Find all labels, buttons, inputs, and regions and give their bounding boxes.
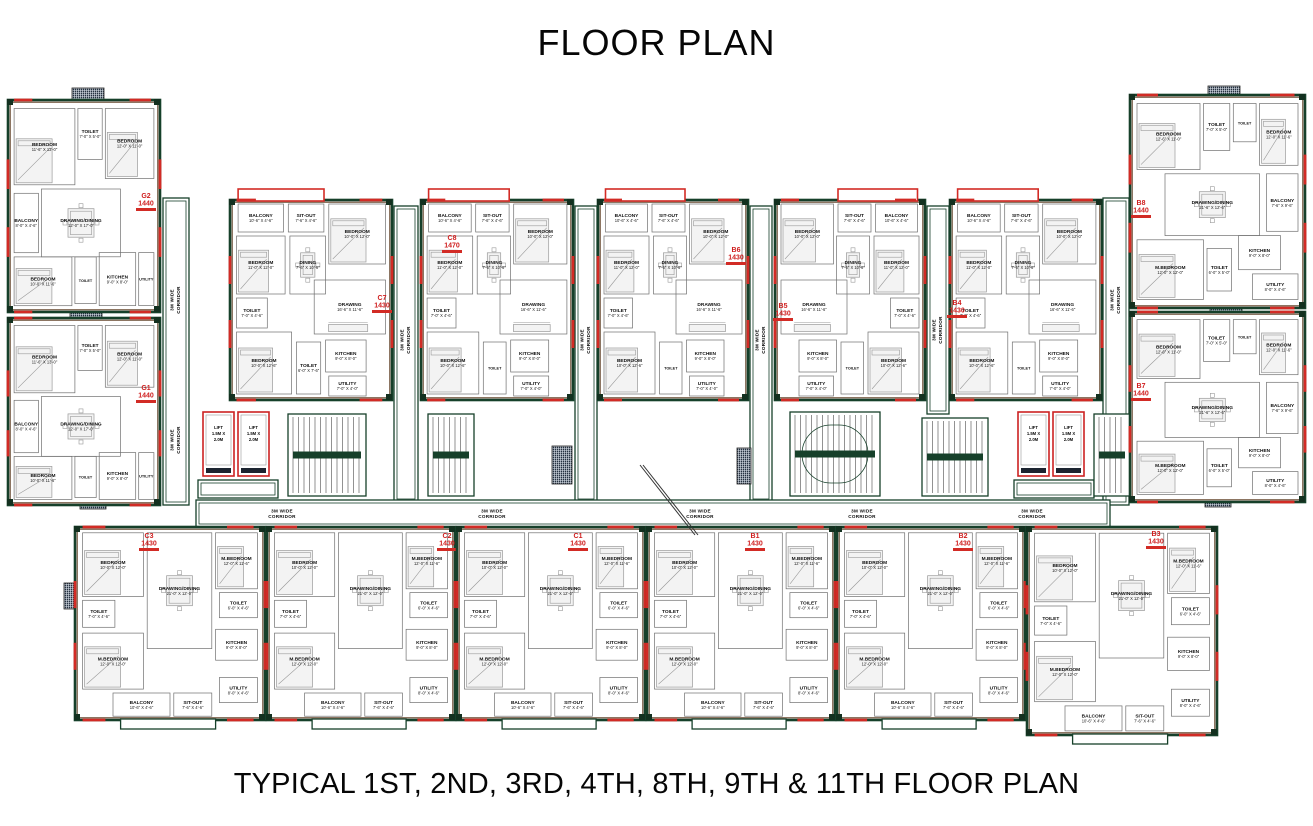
wall-corner-block <box>1026 526 1032 532</box>
corridor-label: 3M WIDE <box>1021 509 1043 514</box>
room-dims: 7'-6" X 10'-6" <box>482 265 506 270</box>
room-dims: 10'-0" X 12'-0" <box>862 565 888 570</box>
room-dims: 11'-0" X 12'-0" <box>614 265 640 270</box>
room-dims: 12'-0" X 12'-0" <box>1052 672 1078 677</box>
wall-corner-block <box>74 526 80 532</box>
room-dims: 9'-0" X 8'-0" <box>606 645 628 650</box>
room-dims: 6'-0" X 4'-6" <box>988 605 1010 610</box>
lift-door <box>241 468 266 473</box>
wall-corner-block <box>1299 302 1305 308</box>
unit-tag-threshold <box>136 208 156 211</box>
corridor-label: CORRIDOR <box>938 316 943 344</box>
unit-B2: BEDROOM10'-0" X 12'-0"DRAWING/DINING21'-… <box>266 526 457 729</box>
room-dims: 7'-6" X 4'-6" <box>182 705 204 710</box>
unit-tag-code: C1 <box>574 533 583 540</box>
wall-corner-block <box>449 714 455 720</box>
unit-RW-B: BEDROOM12'-6" X 11'-0"TOILET7'-0" X 5'-0… <box>1129 311 1305 502</box>
room-dims: 10'-6" X 4'-6" <box>701 705 725 710</box>
room-dims: 16'-6" X 11'-6" <box>521 307 547 312</box>
room-dims: 7'-0" X 4'-6" <box>280 614 302 619</box>
corridor <box>163 198 189 505</box>
room-dims: 7'-0" X 5'-0" <box>1206 127 1228 132</box>
room-dims: 9'-0" X 8'-0" <box>1178 654 1200 659</box>
lift <box>1018 412 1049 476</box>
unit-RW-A: BEDROOM12'-6" X 11'-0"TOILET7'-0" X 5'-0… <box>1129 94 1305 308</box>
room-dims: 7'-6" X 9'-6" <box>1272 203 1294 208</box>
corridor-label: CORRIDOR <box>686 514 714 519</box>
wall-corner-block <box>7 306 13 312</box>
room-dims: 9'-0" X 8'-0" <box>1249 253 1271 258</box>
lift-door <box>1021 468 1046 473</box>
unit-tag-threshold <box>136 400 156 403</box>
unit-LW-B: BEDROOM11'-6" X 13'-0"TOILET7'-0" X 5'-0… <box>7 317 160 505</box>
room-dims: 12'-0" X 11'-6" <box>984 561 1010 566</box>
wall-corner-block <box>919 199 925 205</box>
lift <box>238 412 269 476</box>
room-dims: 7'-0" X 4'-0" <box>521 386 543 391</box>
unit-tag-code: C7 <box>378 295 387 302</box>
wall-corner-block <box>597 199 603 205</box>
wall-corner-block <box>639 714 645 720</box>
balcony-projection <box>312 719 406 729</box>
wall-corner-block <box>639 526 645 532</box>
room-dims: 21'-0" X 12'-0" <box>357 591 383 596</box>
room-dims: 10'-0" X 12'-0" <box>292 565 318 570</box>
room-dims: 10'-6" X 4'-6" <box>1082 719 1106 724</box>
wall-corner-block <box>836 714 842 720</box>
room-dims: 9'-0" X 8'-0" <box>416 645 438 650</box>
room-dims: 6'-0" X 4'-6" <box>1180 611 1202 616</box>
room-dims: 21'-0" X 12'-0" <box>737 591 763 596</box>
corridor-label: 3M WIDE <box>1109 289 1114 311</box>
room-name: TOILET <box>664 367 678 371</box>
unit-tag-area: 1440 <box>138 201 154 208</box>
balcony-projection <box>121 719 216 729</box>
room-dims: 11'-6" X 13'-0" <box>32 147 58 152</box>
room-dims: 12'-6" X 11'-0" <box>1156 137 1182 142</box>
stair-landing-rail <box>293 452 361 459</box>
stair-landing-rail <box>433 452 469 459</box>
unit-tag-threshold <box>1131 215 1151 218</box>
room-dims: 12'-0" X 11'-6" <box>604 561 630 566</box>
unit-tag-threshold <box>1146 546 1166 549</box>
room-dims: 21'-0" X 12'-0" <box>547 591 573 596</box>
room-dims: 11'-0" X 12'-0" <box>437 265 463 270</box>
balcony-projection <box>502 719 596 729</box>
wall-corner-block <box>229 394 235 400</box>
unit-tag-code: B6 <box>732 247 741 254</box>
lift-label: LIFT <box>249 425 258 430</box>
room-dims: 12'-0" X 12'-0" <box>672 661 698 666</box>
corridor-label: 3M WIDE <box>851 509 873 514</box>
bed <box>606 250 634 292</box>
unit-tag-threshold <box>726 262 746 265</box>
unit-tag-area: 1430 <box>374 303 390 310</box>
corridor-label: CORRIDOR <box>268 514 296 519</box>
balcony-projection <box>882 719 976 729</box>
room-dims: 10'-0" X 12'-0" <box>703 234 729 239</box>
lift-label: 2.0M <box>214 437 224 442</box>
room-dims: 9'-0" X 8'-0" <box>1048 356 1070 361</box>
room-dims: 10'-0" X 11'-6" <box>30 478 56 483</box>
corridor <box>196 500 1110 527</box>
room-dims: 10'-0" X 12'-0" <box>794 234 820 239</box>
room-dims: 7'-6" X 4'-6" <box>1011 218 1033 223</box>
corridor-label: 3M WIDE <box>169 429 174 451</box>
room-dims: 6'-0" X 4'-6" <box>798 605 820 610</box>
corridor-label: CORRIDOR <box>478 514 506 519</box>
wall-corner-block <box>567 394 573 400</box>
wall-corner-block <box>1129 496 1135 502</box>
bed <box>429 250 457 292</box>
lift-door <box>206 468 231 473</box>
wall-corner-block <box>1019 714 1025 720</box>
room-dims: 10'-0" X 12'-6" <box>251 363 277 368</box>
wall-corner-block <box>266 526 272 532</box>
room-dims: 8'-0" X 4'-6" <box>418 690 440 695</box>
room-dims: 7'-0" X 4'-0" <box>337 386 359 391</box>
room-dims: 7'-0" X 4'-6" <box>608 313 630 318</box>
room-dims: 10'-0" X 12'-0" <box>527 234 553 239</box>
corridor-label: 3M WIDE <box>579 329 584 351</box>
room-dims: 21'-0" X 12'-0" <box>167 591 193 596</box>
room-dims: 10'-0" X 12'-0" <box>100 565 126 570</box>
room-dims: 7'-0" X 5'-0" <box>79 134 101 139</box>
room-dims: 12'-0" X 12'-0" <box>1157 270 1183 275</box>
unit-tag-threshold <box>372 310 392 313</box>
wall-corner-block <box>567 199 573 205</box>
room-dims: 10'-0" X 12'-0" <box>672 565 698 570</box>
room-dims: 16'-6" X 11'-6" <box>1050 307 1076 312</box>
room-dims: 12'-6" X 11'-0" <box>1156 349 1182 354</box>
bed <box>1170 548 1196 591</box>
room-dims: 10'-0" X 12'-0" <box>344 234 370 239</box>
room-name: TOILET <box>79 476 93 480</box>
room-dims: 8'-0" X 4'-6" <box>1265 287 1287 292</box>
sofa <box>689 325 725 332</box>
room-dims: 10'-0" X 12'-6" <box>440 363 466 368</box>
unit-tag-area: 1430 <box>775 311 791 318</box>
wall-corner-block <box>1299 496 1305 502</box>
unit-tag-area: 1430 <box>949 308 965 315</box>
room-dims: 21'-6" X 12'-6" <box>1199 410 1225 415</box>
room-dims: 9'-0" X 8'-0" <box>1249 453 1271 458</box>
corridor-label: 3M WIDE <box>931 319 936 341</box>
unit-T3: BALCONY10'-6" X 4'-6"SIT-OUT7'-6" X 4'-6… <box>597 189 748 400</box>
page-caption: TYPICAL 1ST, 2ND, 3RD, 4TH, 8TH, 9TH & 1… <box>0 768 1313 801</box>
room-dims: 7'-6" X 9'-6" <box>1272 408 1294 413</box>
room-dims: 10'-0" X 12'-6" <box>617 363 643 368</box>
wall-corner-block <box>386 394 392 400</box>
unit-B5: BEDROOM10'-0" X 12'-0"DRAWING/DINING21'-… <box>836 526 1025 729</box>
room-dims: 16'-6" X 11'-6" <box>696 307 722 312</box>
room-dims: 7'-0" X 4'-6" <box>470 614 492 619</box>
room-dims: 8'-0" X 4'-6" <box>608 690 630 695</box>
corridor-label: CORRIDOR <box>176 286 181 314</box>
unit-B3: BEDROOM10'-0" X 12'-0"DRAWING/DINING21'-… <box>456 526 645 729</box>
unit-T2: BALCONY10'-6" X 4'-6"SIT-OUT7'-6" X 4'-6… <box>420 189 573 400</box>
stair-landing-rail <box>927 454 983 461</box>
room-dims: 9'-0" X 8'-0" <box>807 356 829 361</box>
room-dims: 7'-0" X 4'-0" <box>696 386 718 391</box>
bed <box>978 547 1004 587</box>
room-dims: 21'-0" X 12'-0" <box>1119 596 1145 601</box>
room-dims: 12'-0" X 11'-6" <box>1176 564 1202 569</box>
wall-corner-block <box>774 394 780 400</box>
room-dims: 10'-6" X 4'-6" <box>511 705 535 710</box>
room-dims: 8'-0" X 4'-6" <box>1265 483 1287 488</box>
room-dims: 7'-6" X 10'-6" <box>841 265 865 270</box>
sofa <box>794 325 830 332</box>
lift-label: 2.0M <box>1064 437 1074 442</box>
room-dims: 12'-0" X 11'-6" <box>1266 347 1292 352</box>
corridor-label: 3M WIDE <box>169 289 174 311</box>
stair-landing-rail <box>795 451 875 458</box>
wall-corner-block <box>949 199 955 205</box>
room-dims: 12'-0" X 12'-0" <box>862 661 888 666</box>
unit-tag-code: C2 <box>443 533 452 540</box>
unit-tag-threshold <box>442 250 462 253</box>
room-dims: 9'-0" X 8'-0" <box>695 356 717 361</box>
room-dims: 6'-0" X 7'-6" <box>298 368 320 373</box>
duct-shaft <box>552 446 572 484</box>
room-name: TOILET <box>1238 121 1252 125</box>
room-dims: 8'-0" X 4'-6" <box>988 690 1010 695</box>
unit-tag-code: B7 <box>1137 383 1146 390</box>
room-dims: 10'-6" X 4'-6" <box>967 218 991 223</box>
corridor-label: CORRIDOR <box>1018 514 1046 519</box>
wall-corner-block <box>154 499 160 505</box>
lift <box>203 412 234 476</box>
room-dims: 7'-6" X 10'-6" <box>1011 265 1035 270</box>
room-dims: 10'-0" X 12'-0" <box>482 565 508 570</box>
lift-label: LIFT <box>214 425 223 430</box>
room-dims: 7'-0" X 4'-6" <box>850 614 872 619</box>
corridor-label: CORRIDOR <box>586 326 591 354</box>
unit-tag-code: B2 <box>959 533 968 540</box>
wall-corner-block <box>259 526 265 532</box>
unit-tag-code: B8 <box>1137 200 1146 207</box>
unit-tag-area: 1470 <box>444 243 460 250</box>
room-dims: 8'-0" X 4'-6" <box>16 427 38 432</box>
unit-tag-threshold <box>437 548 457 551</box>
wall-corner-block <box>456 714 462 720</box>
room-dims: 9'-0" X 8'-0" <box>796 645 818 650</box>
unit-tag-area: 1430 <box>1148 539 1164 546</box>
room-name: TOILET <box>1017 367 1031 371</box>
wall-corner-block <box>1129 302 1135 308</box>
room-dims: 6'-0" X 4'-6" <box>608 605 630 610</box>
unit-B4: BEDROOM10'-0" X 12'-0"DRAWING/DINING21'-… <box>646 526 835 729</box>
floor-plan-sheet: FLOOR PLAN 3M WIDECORRIDOR3M WIDECORRIDO… <box>0 0 1313 826</box>
room-dims: 8'-0" X 4'-6" <box>798 690 820 695</box>
wall-corner-block <box>154 99 160 105</box>
wall-corner-block <box>1211 729 1217 735</box>
room-dims: 7'-0" X 4'-6" <box>431 313 453 318</box>
room-name: UTILITY <box>139 278 154 282</box>
unit-tag-threshold <box>139 548 159 551</box>
lift <box>1053 412 1084 476</box>
wall-corner-block <box>456 526 462 532</box>
wall-corner-block <box>1019 526 1025 532</box>
bed <box>598 547 624 587</box>
unit-tag-area: 1430 <box>747 541 763 548</box>
unit-T1: BALCONY10'-6" X 4'-6"SIT-OUT7'-6" X 4'-6… <box>229 189 392 400</box>
lift-label: 1.5M X <box>212 431 225 436</box>
room-dims: 9'-0" X 8'-0" <box>986 645 1008 650</box>
wall-corner-block <box>742 394 748 400</box>
unit-B1: BEDROOM10'-0" X 12'-0"DRAWING/DINING21'-… <box>74 526 265 729</box>
room-dims: 9'-0" X 8'-0" <box>107 279 129 284</box>
bed <box>958 250 986 292</box>
room-name: TOILET <box>79 279 93 283</box>
room-dims: 12'-0" X 11'-6" <box>1266 135 1292 140</box>
unit-tag-threshold <box>773 318 793 321</box>
wall-corner-block <box>154 306 160 312</box>
room-dims: 12'-0" X 17'-0" <box>68 427 94 432</box>
room-dims: 10'-0" X 12'-6" <box>969 363 995 368</box>
room-dims: 7'-0" X 5'-0" <box>1206 341 1228 346</box>
bed <box>788 547 814 587</box>
wall-corner-block <box>1129 311 1135 317</box>
corridor-label: 3M WIDE <box>399 329 404 351</box>
room-name: UTILITY <box>139 475 154 479</box>
lift-label: 2.0M <box>1029 437 1039 442</box>
room-dims: 8'-0" X 4'-6" <box>1180 703 1202 708</box>
room-dims: 10'-0" X 12'-0" <box>1056 234 1082 239</box>
unit-tag-threshold <box>947 315 967 318</box>
room-dims: 7'-0" X 5'-0" <box>79 348 101 353</box>
lift-label: 1.5M X <box>247 431 260 436</box>
room-dims: 12'-0" X 17'-0" <box>68 223 94 228</box>
unit-tag-area: 1440 <box>138 393 154 400</box>
room-name: TOILET <box>846 367 860 371</box>
room-dims: 12'-0" X 11'-6" <box>794 561 820 566</box>
room-dims: 9'-0" X 8'-0" <box>107 476 129 481</box>
room-dims: 8'-0" X 4'-6" <box>228 690 250 695</box>
room-dims: 10'-6" X 4'-6" <box>438 218 462 223</box>
wall-corner-block <box>774 199 780 205</box>
unit-tag-area: 1430 <box>955 541 971 548</box>
room-dims: 8'-0" X 4'-6" <box>16 223 38 228</box>
room-dims: 7'-6" X 4'-6" <box>753 705 775 710</box>
wall-corner-block <box>154 317 160 323</box>
lift-label: 1.5M X <box>1062 431 1075 436</box>
wall-corner-block <box>646 526 652 532</box>
room-dims: 7'-6" X 4'-6" <box>482 218 504 223</box>
room-dims: 7'-6" X 4'-6" <box>295 218 317 223</box>
lift-label: LIFT <box>1029 425 1038 430</box>
room-dims: 7'-6" X 10'-6" <box>658 265 682 270</box>
bed <box>218 547 244 587</box>
room-dims: 12'-0" X 12'-0" <box>1157 468 1183 473</box>
room-dims: 10'-6" X 4'-6" <box>615 218 639 223</box>
room-dims: 21'-6" X 12'-6" <box>1199 205 1225 210</box>
lift-label: LIFT <box>1064 425 1073 430</box>
unit-tag-code: B4 <box>953 300 962 307</box>
room-dims: 11'-0" X 12'-0" <box>966 265 992 270</box>
wall-corner-block <box>919 394 925 400</box>
room-dims: 7'-0" X 4'-6" <box>1040 621 1062 626</box>
room-dims: 12'-0" X 11'-6" <box>414 561 440 566</box>
corridor-label: 3M WIDE <box>689 509 711 514</box>
room-dims: 10'-6" X 4'-6" <box>321 705 345 710</box>
balcony-projection <box>692 719 786 729</box>
room-dims: 7'-6" X 4'-6" <box>1134 719 1156 724</box>
room-dims: 10'-6" X 4'-6" <box>891 705 915 710</box>
balcony-projection <box>1073 734 1168 744</box>
wall-corner-block <box>74 714 80 720</box>
room-dims: 7'-6" X 4'-6" <box>844 218 866 223</box>
wall-corner-block <box>7 317 13 323</box>
unit-tag-threshold <box>953 548 973 551</box>
room-dims: 10'-0" X 12'-6" <box>881 363 907 368</box>
wall-corner-block <box>1299 94 1305 100</box>
room-dims: 6'-0" X 5'-0" <box>1209 468 1231 473</box>
room-dims: 16'-6" X 11'-6" <box>801 307 827 312</box>
room-dims: 7'-0" X 4'-6" <box>88 614 110 619</box>
wall-corner-block <box>420 394 426 400</box>
unit-tag-threshold <box>1131 398 1151 401</box>
bed <box>107 341 137 385</box>
unit-tag-code: C3 <box>145 533 154 540</box>
room-dims: 7'-0" X 4'-6" <box>894 313 916 318</box>
room-dims: 10'-6" X 4'-6" <box>249 218 273 223</box>
lift-label: 1.5M X <box>1027 431 1040 436</box>
unit-tag-threshold <box>745 548 765 551</box>
room-dims: 12'-0" X 12'-0" <box>100 661 126 666</box>
corridor-label: 3M WIDE <box>754 329 759 351</box>
room-dims: 7'-0" X 4'-0" <box>1050 386 1072 391</box>
wall-corner-block <box>742 199 748 205</box>
room-dims: 7'-6" X 4'-6" <box>943 705 965 710</box>
wall-corner-block <box>266 714 272 720</box>
duct-shaft <box>737 448 751 484</box>
wall-corner-block <box>1299 311 1305 317</box>
room-dims: 7'-0" X 4'-6" <box>660 614 682 619</box>
room-dims: 12'-0" X 11'-0" <box>117 357 143 362</box>
corridor-label: CORRIDOR <box>176 426 181 454</box>
corridor-label: CORRIDOR <box>1116 286 1121 314</box>
unit-T5: BALCONY10'-6" X 4'-6"SIT-OUT7'-6" X 4'-6… <box>947 189 1102 400</box>
room-dims: 7'-0" X 4'-6" <box>241 313 263 318</box>
corridor-label: 3M WIDE <box>481 509 503 514</box>
wall-corner-block <box>449 526 455 532</box>
wall-corner-block <box>836 526 842 532</box>
room-dims: 6'-0" X 4'-6" <box>228 605 250 610</box>
room-dims: 6'-0" X 5'-0" <box>1209 270 1231 275</box>
room-dims: 10'-0" X 11'-6" <box>30 282 56 287</box>
wall-corner-block <box>229 199 235 205</box>
room-dims: 7'-6" X 10'-6" <box>296 265 320 270</box>
unit-tag-area: 1430 <box>570 541 586 548</box>
room-dims: 12'-0" X 12'-0" <box>482 661 508 666</box>
bed <box>1262 119 1286 163</box>
wall-corner-block <box>1211 526 1217 532</box>
wall-corner-block <box>1096 199 1102 205</box>
unit-tag-area: 1430 <box>141 541 157 548</box>
wall-corner-block <box>1096 394 1102 400</box>
room-dims: 6'-0" X 4'-6" <box>418 605 440 610</box>
room-dims: 7'-6" X 4'-6" <box>373 705 395 710</box>
unit-tag-code: G1 <box>141 385 150 392</box>
bed <box>1262 333 1286 373</box>
sofa <box>329 325 368 332</box>
unit-LW-A: BEDROOM11'-6" X 13'-0"TOILET7'-0" X 5'-0… <box>7 99 160 312</box>
unit-tag-code: G2 <box>141 193 150 200</box>
wall-corner-block <box>1026 729 1032 735</box>
bed <box>876 250 904 292</box>
